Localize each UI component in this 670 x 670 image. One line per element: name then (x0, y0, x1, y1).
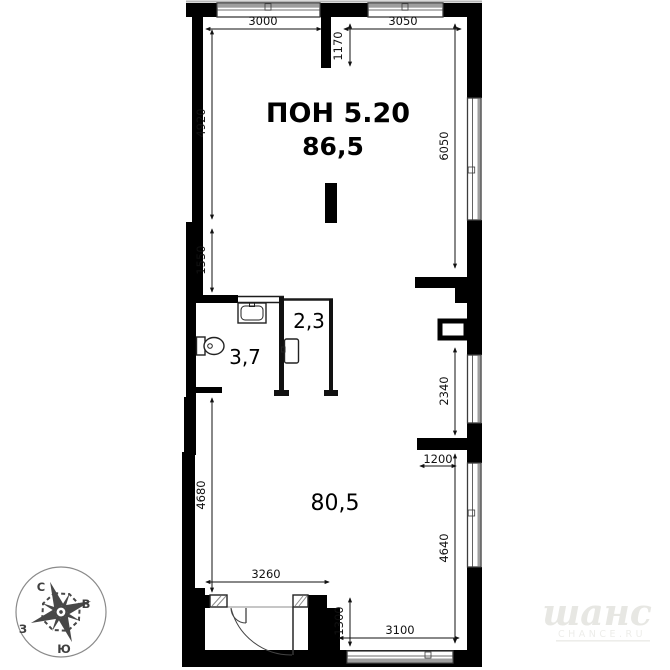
room-label-small: 2,3 (293, 309, 325, 333)
pillar (325, 183, 337, 223)
unit-area: 86,5 (302, 132, 364, 161)
wall-bath-bottom-stub (196, 387, 222, 393)
partition-room-small-right (329, 299, 333, 390)
dim-label-left-mid: 1550 (194, 245, 208, 274)
compass-south-label: Ю (57, 642, 71, 656)
door-swing-arc (231, 608, 292, 655)
wall-stub-right-hook (455, 288, 467, 303)
compass-north-label: С (37, 580, 45, 594)
top-sill-line (186, 1, 482, 3)
wall-stub-right-upper (415, 277, 467, 288)
room-label-bath: 3,7 (229, 345, 261, 369)
wall-right-3 (467, 423, 482, 463)
wall-left-low2 (182, 452, 195, 592)
partition-room-small-left (279, 297, 284, 390)
dim-label-bottom-right: 3100 (385, 623, 414, 637)
door-jamb-left (210, 595, 227, 607)
unit-title: ПОН 5.20 (266, 98, 410, 129)
window-right-1 (468, 98, 482, 220)
dim-label-right-upper: 6050 (437, 131, 451, 160)
floor-plan-page: 3000 3050 1170 4920 1550 4680 6050 2340 … (0, 0, 670, 670)
wall-left-bath (186, 303, 196, 397)
toilet-symbol (197, 337, 225, 355)
wall-right-1 (467, 3, 482, 98)
compass-west-label: З (19, 622, 27, 636)
wall-left-low1 (184, 397, 196, 455)
partition-foot-left (274, 390, 289, 396)
basin-symbol (238, 303, 266, 323)
wall-right-2 (467, 220, 482, 355)
floor-plan-svg: 3000 3050 1170 4920 1550 4680 6050 2340 … (0, 0, 670, 670)
wall-stub-top (321, 17, 331, 68)
sink-symbol (282, 339, 299, 363)
window-right-3 (468, 463, 482, 567)
compass-star (20, 571, 102, 653)
wall-entry-right-upper (308, 595, 327, 610)
room-label-main: 80,5 (311, 491, 360, 516)
watermark-underline (556, 640, 650, 642)
window-bottom (347, 651, 453, 663)
door-swing-arc-small (231, 608, 246, 623)
dim-label-left-upper: 4920 (194, 108, 208, 137)
wall-stub-right-lower (417, 438, 467, 450)
partition-foot-right (324, 390, 338, 396)
watermark-site: CHANCE.RU (558, 629, 646, 640)
dim-label-entry-depth: 1300 (332, 606, 346, 635)
compass-east-label: В (82, 597, 91, 611)
door-jamb-right (293, 595, 308, 607)
dim-label-top-left: 3000 (248, 14, 277, 28)
dim-label-right-window: 2340 (437, 376, 451, 405)
dim-label-left-lower: 4680 (194, 480, 208, 509)
window-right-2 (468, 355, 482, 423)
dim-label-right-lower: 4640 (437, 533, 451, 562)
dim-label-bottom-inner: 3260 (251, 567, 280, 581)
watermark-brand: шанс (542, 592, 652, 634)
vent-duct (440, 321, 466, 338)
dim-label-top-niche: 1170 (331, 31, 345, 60)
wall-entry-left (196, 595, 210, 608)
dim-label-right-ledge: 1200 (423, 452, 452, 466)
entrance-door (210, 595, 308, 655)
compass-rose: С В З Ю (16, 567, 106, 657)
dim-label-top-right: 3050 (388, 14, 417, 28)
watermark: шанс CHANCE.RU (542, 592, 652, 642)
wall-top-mid (320, 3, 368, 17)
wall-bath-top (196, 295, 238, 303)
